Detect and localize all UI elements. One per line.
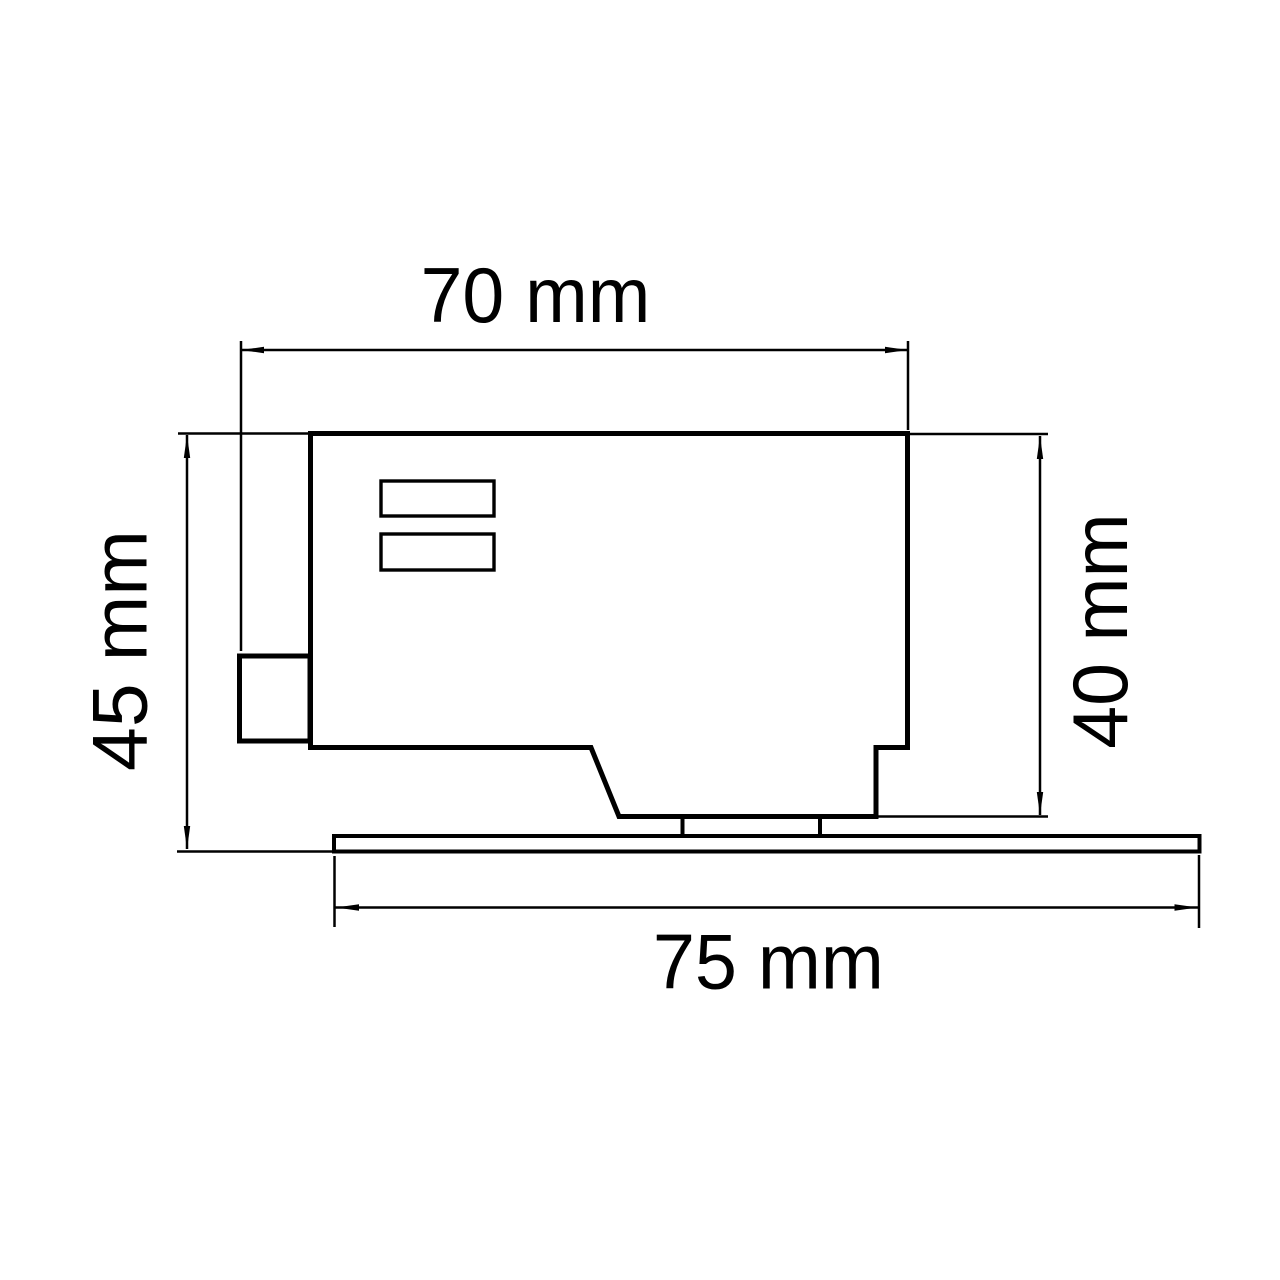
- svg-text:40 mm: 40 mm: [1058, 513, 1145, 748]
- svg-text:75 mm: 75 mm: [653, 918, 884, 1005]
- svg-text:70 mm: 70 mm: [421, 253, 651, 340]
- svg-text:45 mm: 45 mm: [76, 530, 164, 771]
